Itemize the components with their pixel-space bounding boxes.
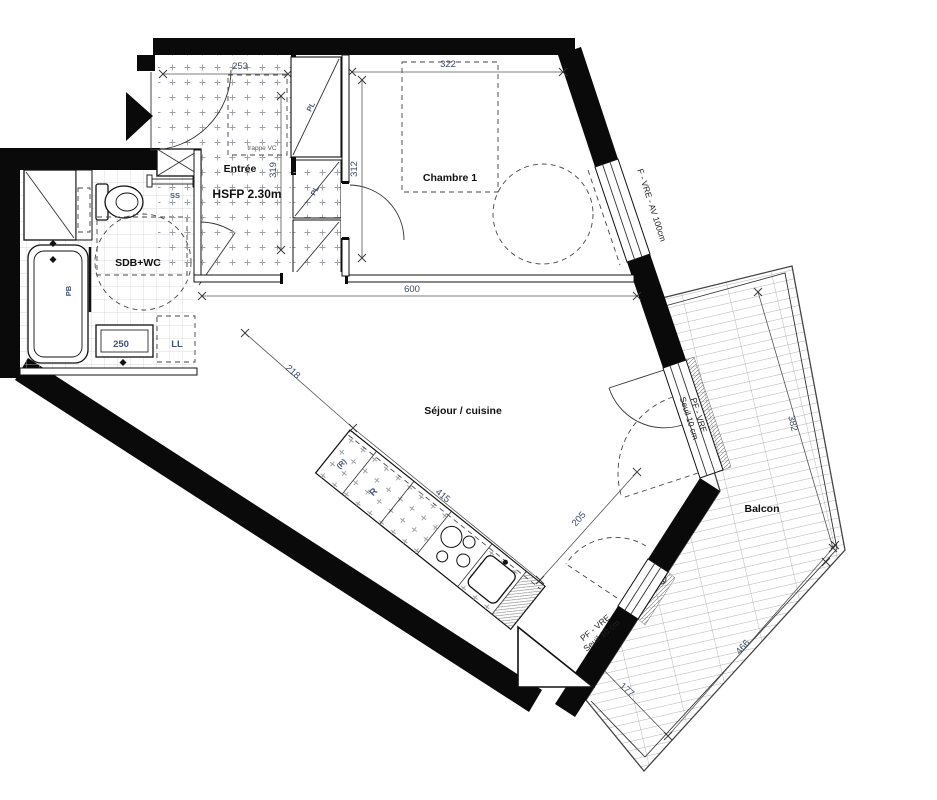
balcony-label: Balcon — [744, 503, 779, 515]
entry-door-jamb — [137, 55, 155, 71]
living-opening — [282, 272, 346, 285]
closets: PL PL — [291, 55, 341, 276]
closet-extra — [293, 220, 341, 276]
dim-entry-width: 253 — [232, 61, 248, 72]
floor-plan-drawing: 382 466 177 Balcon F - VRE - AV 100cm — [0, 0, 937, 800]
dim-bedroom-width: 322 — [440, 59, 456, 70]
kitchen-counter: (R) R — [316, 430, 545, 629]
vanity-width-label: 250 — [113, 339, 129, 350]
wall-left-vertical — [0, 148, 20, 378]
bedroom: Chambre 1 322 312 — [348, 59, 593, 264]
living-north-wall — [194, 275, 634, 282]
bathroom-south-wall — [20, 368, 197, 375]
bedroom-west-wall — [342, 55, 349, 276]
dim-living-diag-a: 218 — [283, 363, 302, 382]
entry-arrow-icon — [126, 92, 153, 141]
wall-left-horizontal — [0, 148, 160, 170]
bath-screen-label: PB — [64, 285, 73, 296]
bathroom-label: SDB+WC — [115, 257, 161, 269]
bedroom-door-opening — [341, 183, 350, 238]
dim-bedroom-depth: 312 — [349, 161, 360, 177]
bedroom-label: Chambre 1 — [423, 172, 477, 184]
floor-plan-page: 382 466 177 Balcon F - VRE - AV 100cm — [0, 0, 937, 800]
bedroom-window: F - VRE - AV 100cm — [588, 159, 668, 265]
living-label: Séjour / cuisine — [424, 405, 502, 417]
balcony: 382 466 177 Balcon — [586, 266, 845, 771]
living-room: Séjour / cuisine (R) — [198, 284, 641, 629]
ceiling-height-note: HSFP 2.30m — [212, 187, 281, 201]
washing-machine-label: LL — [171, 339, 183, 350]
closet-upper — [291, 57, 341, 157]
entry-label: Entrée — [224, 163, 257, 175]
bathroom-east-wall — [194, 150, 201, 278]
inspection-hatch-label: trappe VC — [247, 145, 277, 152]
dim-entry-depth: 319 — [268, 162, 279, 178]
exterior-walls — [0, 38, 720, 717]
bathtub — [28, 245, 90, 363]
dim-living-diag-b: 205 — [570, 510, 589, 529]
wall-top — [153, 38, 575, 55]
turning-circle — [493, 164, 593, 264]
wall-right-upper — [558, 47, 618, 167]
shower-tray — [24, 170, 92, 240]
dim-living-width: 600 — [404, 284, 420, 295]
bedroom-door — [349, 185, 404, 240]
